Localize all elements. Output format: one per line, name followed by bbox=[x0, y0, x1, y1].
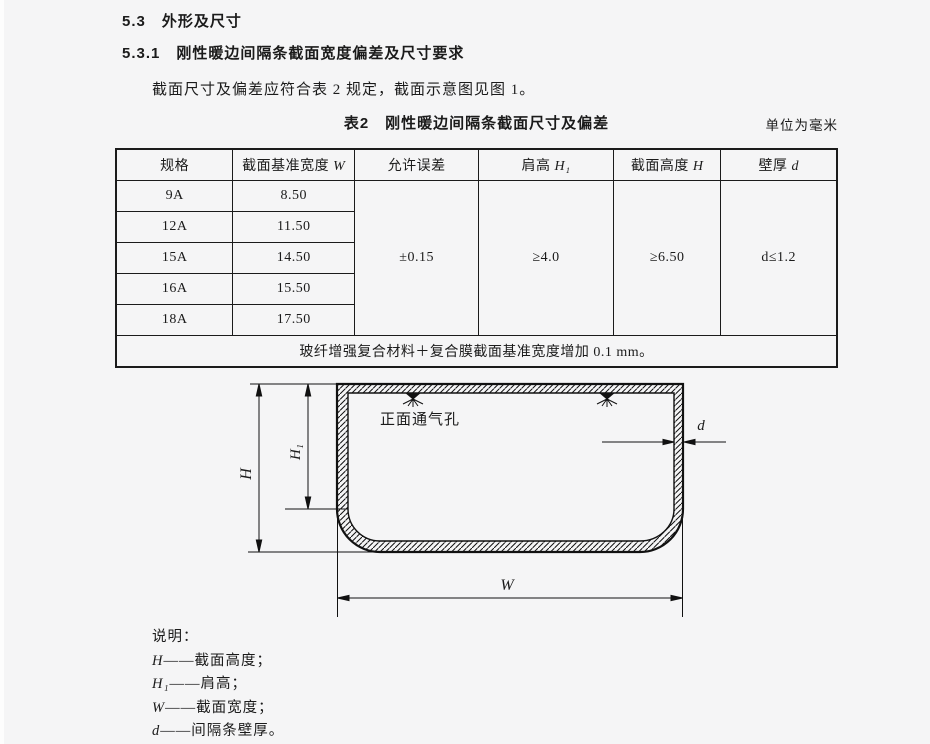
header-base-width: 截面基准宽度 W bbox=[233, 149, 355, 181]
cell-shoulder-height: ≥4.0 bbox=[479, 181, 614, 336]
unit-note: 单位为毫米 bbox=[766, 114, 839, 134]
table-caption-row: 表2 刚性暖边间隔条截面尺寸及偏差 单位为毫米 bbox=[115, 112, 838, 134]
cell-base-width: 14.50 bbox=[233, 243, 355, 274]
cell-spec: 18A bbox=[116, 305, 233, 336]
table-footnote: 玻纤增强复合材料＋复合膜截面基准宽度增加 0.1 mm。 bbox=[116, 336, 837, 368]
table-row: 9A 8.50 ±0.15 ≥4.0 ≥6.50 d≤1.2 bbox=[116, 181, 837, 212]
cell-base-width: 8.50 bbox=[233, 181, 355, 212]
dimension-w bbox=[338, 512, 683, 617]
legend-item: W——截面宽度； bbox=[152, 697, 284, 721]
dim-label-h: H bbox=[238, 467, 255, 481]
vent-label: 正面通气孔 bbox=[380, 411, 460, 428]
cross-section-figure: 正面通气孔 H H₁ W d bbox=[230, 372, 750, 622]
legend-title: 说明： bbox=[152, 626, 284, 650]
cell-spec: 15A bbox=[116, 243, 233, 274]
header-shoulder-height: 肩高 H₁ bbox=[479, 149, 614, 181]
dim-label-w: W bbox=[500, 577, 515, 594]
intro-paragraph: 截面尺寸及偏差应符合表 2 规定，截面示意图见图 1。 bbox=[152, 78, 535, 99]
cell-base-width: 15.50 bbox=[233, 274, 355, 305]
legend-item: d——间隔条壁厚。 bbox=[152, 720, 284, 744]
figure-legend: 说明： H——截面高度； H₁——肩高； W——截面宽度； d——间隔条壁厚。 bbox=[152, 626, 284, 744]
table-footnote-row: 玻纤增强复合材料＋复合膜截面基准宽度增加 0.1 mm。 bbox=[116, 336, 837, 368]
cell-tolerance: ±0.15 bbox=[355, 181, 479, 336]
scan-edge bbox=[0, 0, 4, 744]
dim-label-h1: H₁ bbox=[288, 444, 304, 461]
vent-hole-icon bbox=[403, 393, 423, 407]
vent-hole-icon bbox=[597, 393, 617, 407]
legend-item: H₁——肩高； bbox=[152, 673, 284, 697]
spacer-wall-hatch bbox=[337, 384, 683, 552]
cell-spec: 9A bbox=[116, 181, 233, 212]
section-heading: 5.3 外形及尺寸 bbox=[122, 10, 242, 31]
cell-spec: 16A bbox=[116, 274, 233, 305]
table-header-row: 规格 截面基准宽度 W 允许误差 肩高 H₁ 截面高度 H 壁厚 d bbox=[116, 149, 837, 181]
header-tolerance: 允许误差 bbox=[355, 149, 479, 181]
cell-base-width: 17.50 bbox=[233, 305, 355, 336]
dimension-d bbox=[602, 439, 726, 444]
cell-section-height: ≥6.50 bbox=[613, 181, 720, 336]
spacer-outline-outer bbox=[337, 384, 683, 552]
spec-table: 规格 截面基准宽度 W 允许误差 肩高 H₁ 截面高度 H 壁厚 d 9A 8.… bbox=[115, 148, 838, 368]
cell-base-width: 11.50 bbox=[233, 212, 355, 243]
dim-label-d: d bbox=[697, 418, 705, 434]
dimension-h bbox=[248, 384, 642, 552]
legend-item: H——截面高度； bbox=[152, 650, 284, 674]
cell-wall-thickness: d≤1.2 bbox=[721, 181, 837, 336]
header-spec: 规格 bbox=[116, 149, 233, 181]
cell-spec: 12A bbox=[116, 212, 233, 243]
cross-section-diagram: 正面通气孔 H H₁ W d bbox=[230, 372, 750, 622]
header-section-height: 截面高度 H bbox=[613, 149, 720, 181]
header-wall-thickness: 壁厚 d bbox=[721, 149, 837, 181]
subsection-heading: 5.3.1 刚性暖边间隔条截面宽度偏差及尺寸要求 bbox=[122, 42, 464, 63]
table-title: 表2 刚性暖边间隔条截面尺寸及偏差 bbox=[115, 112, 838, 133]
